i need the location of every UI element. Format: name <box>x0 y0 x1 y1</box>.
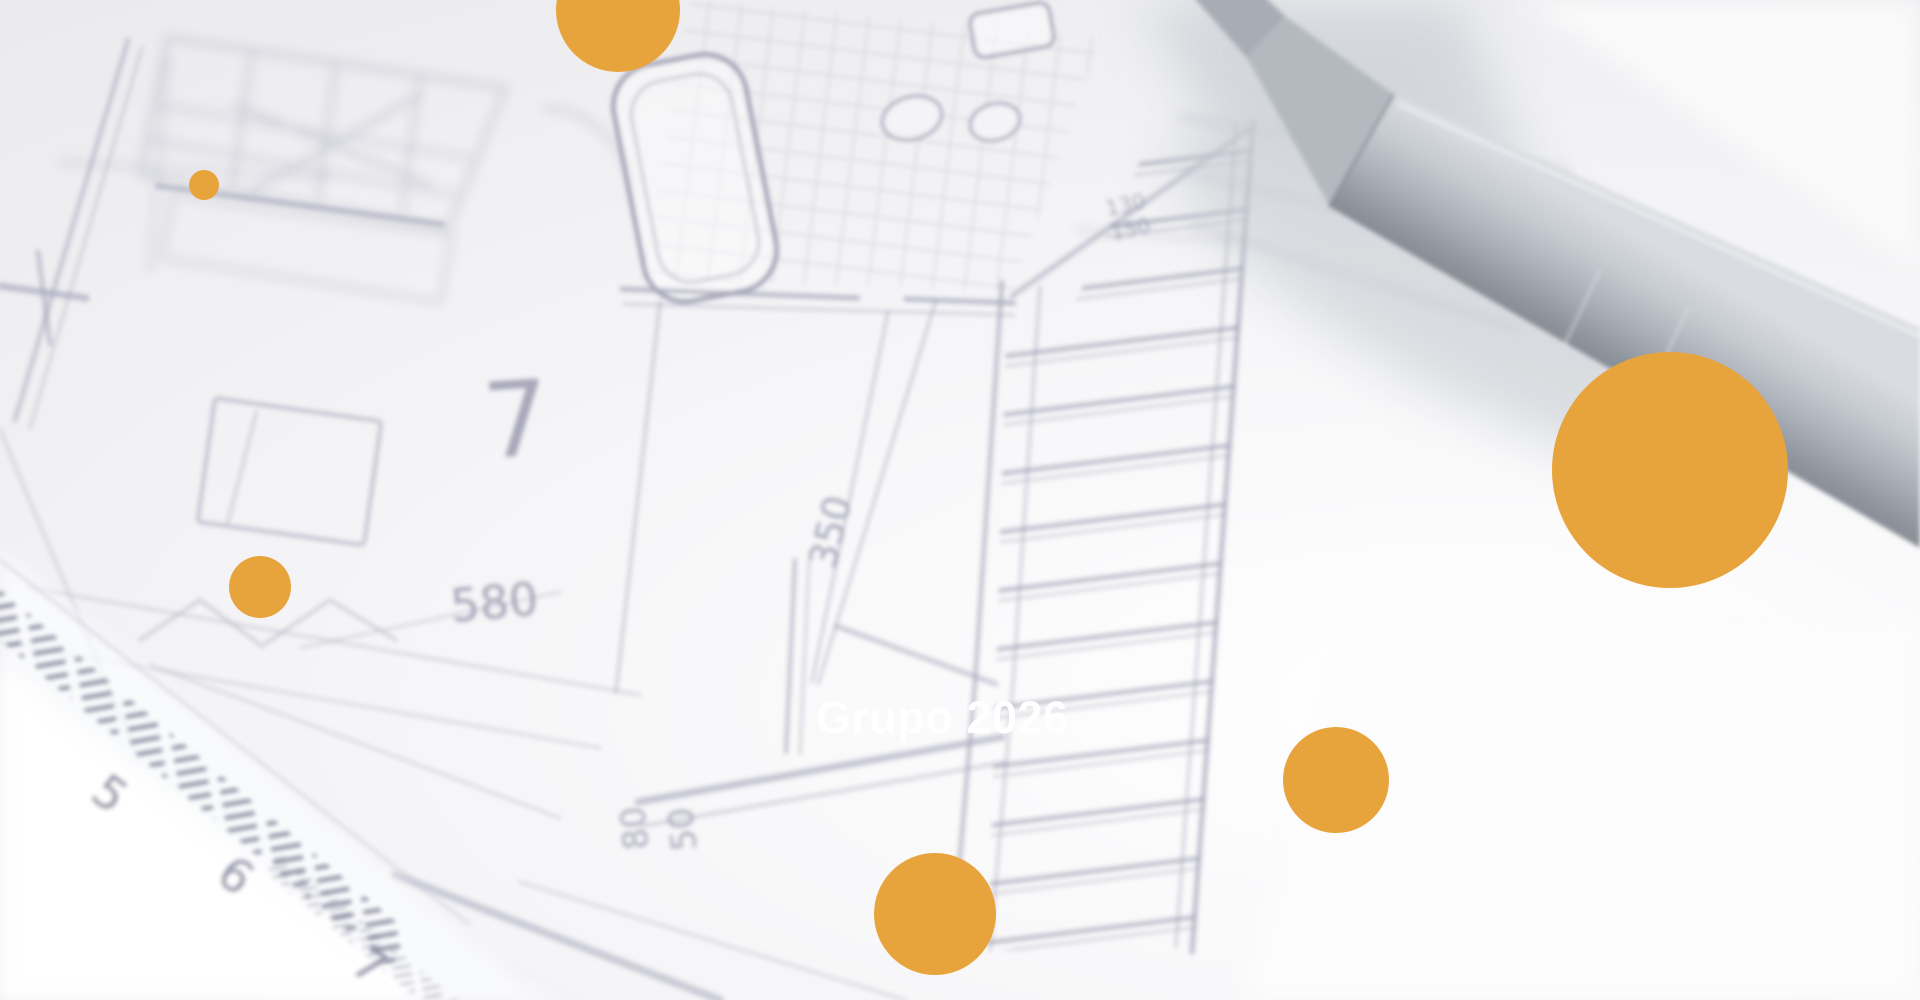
hero-heading: Grupo 2026 <box>816 694 1069 742</box>
dimension-label-80: 80 <box>613 805 657 852</box>
decorative-circle <box>874 853 996 975</box>
dimension-label-580: 580 <box>448 572 540 633</box>
decorative-circle <box>189 170 219 200</box>
room-number-label: 7 <box>479 357 554 483</box>
decorative-circle <box>229 556 291 618</box>
decorative-circle <box>1552 352 1788 588</box>
decorative-circle <box>1283 727 1389 833</box>
staircase-lines <box>60 38 632 302</box>
bathroom-lines <box>606 0 1100 315</box>
hero-background-photo: 7 580 350 80 50 130 150 5 6 <box>0 0 1920 1000</box>
dimension-label-350: 350 <box>800 491 860 572</box>
dimension-label-50: 50 <box>661 806 705 853</box>
